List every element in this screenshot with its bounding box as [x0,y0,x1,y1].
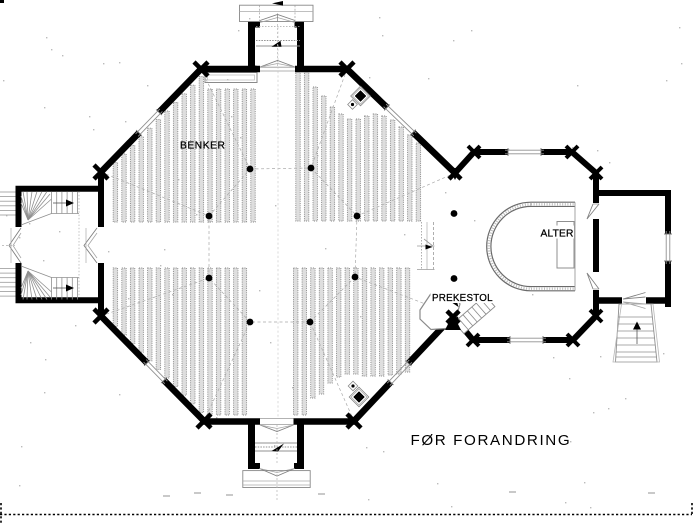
svg-text:FØR FORANDRING: FØR FORANDRING [411,432,572,449]
svg-text:BENKER: BENKER [180,141,226,152]
svg-text:PREKESTOL: PREKESTOL [432,293,493,304]
svg-text:ALTER: ALTER [541,229,574,240]
